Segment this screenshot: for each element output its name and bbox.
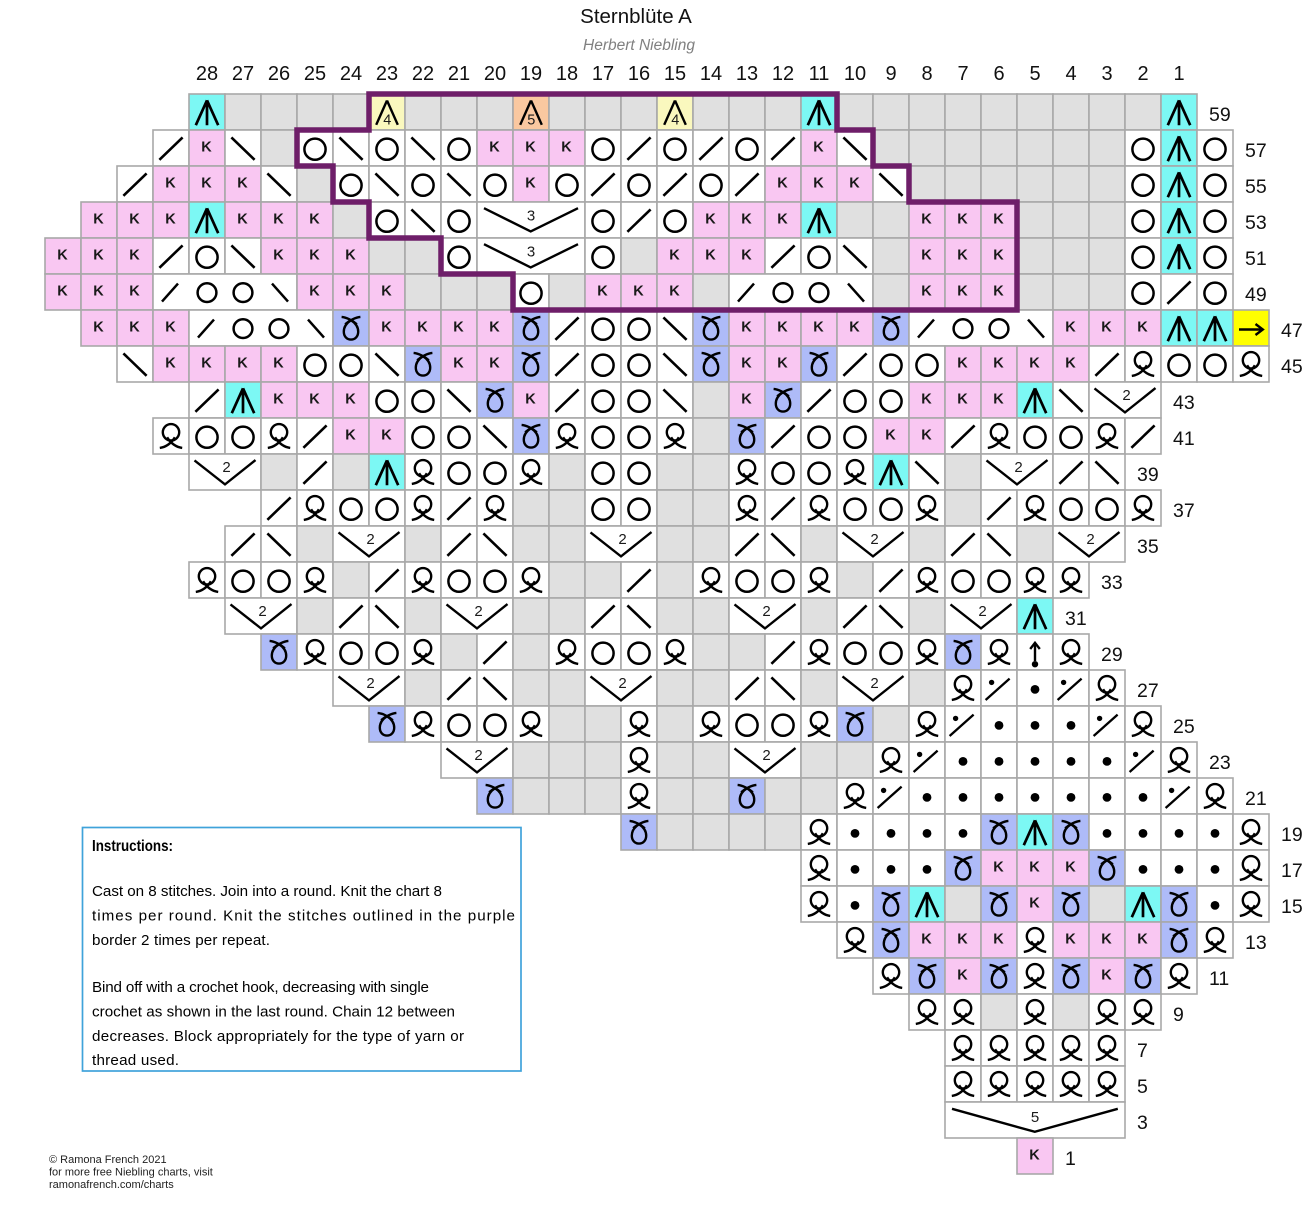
svg-text:7: 7 <box>957 63 968 85</box>
svg-text:53: 53 <box>1245 212 1267 234</box>
svg-text:2: 2 <box>1137 63 1148 85</box>
svg-text:9: 9 <box>1173 1004 1184 1026</box>
svg-text:11: 11 <box>809 63 830 85</box>
svg-text:22: 22 <box>412 63 434 85</box>
svg-text:for more free Niebling charts,: for more free Niebling charts, visit <box>49 1167 213 1179</box>
svg-text:11: 11 <box>1209 968 1229 990</box>
svg-text:33: 33 <box>1101 572 1123 594</box>
svg-text:39: 39 <box>1137 464 1159 486</box>
svg-text:border 2 times per repeat.: border 2 times per repeat. <box>92 932 270 949</box>
svg-text:29: 29 <box>1101 644 1123 666</box>
svg-text:49: 49 <box>1245 284 1267 306</box>
svg-text:13: 13 <box>1245 932 1267 954</box>
svg-text:59: 59 <box>1209 104 1231 126</box>
svg-text:21: 21 <box>1245 788 1267 810</box>
svg-text:25: 25 <box>304 63 326 85</box>
svg-text:26: 26 <box>268 63 290 85</box>
svg-text:7: 7 <box>1137 1040 1148 1062</box>
svg-text:16: 16 <box>628 63 650 85</box>
svg-text:14: 14 <box>700 63 722 85</box>
svg-text:5: 5 <box>1029 63 1040 85</box>
svg-text:Instructions:: Instructions: <box>92 838 173 855</box>
svg-text:27: 27 <box>232 63 254 85</box>
svg-text:15: 15 <box>664 63 686 85</box>
svg-text:1: 1 <box>1065 1148 1076 1170</box>
svg-text:ramonafrench.com/charts: ramonafrench.com/charts <box>49 1179 174 1191</box>
svg-text:23: 23 <box>376 63 398 85</box>
svg-text:3: 3 <box>1101 63 1112 85</box>
svg-text:13: 13 <box>736 63 758 85</box>
svg-text:Cast on 8 stitches. Join into: Cast on 8 stitches. Join into a round. K… <box>92 883 442 900</box>
svg-text:23: 23 <box>1209 752 1231 774</box>
svg-text:17: 17 <box>1281 860 1303 882</box>
svg-text:31: 31 <box>1065 608 1087 630</box>
svg-text:decreases. Block appropriately: decreases. Block appropriately for the t… <box>92 1028 464 1045</box>
svg-text:12: 12 <box>772 63 794 85</box>
svg-text:57: 57 <box>1245 140 1267 162</box>
svg-text:8: 8 <box>921 63 932 85</box>
svg-text:10: 10 <box>844 63 866 85</box>
svg-text:18: 18 <box>556 63 578 85</box>
svg-text:27: 27 <box>1137 680 1159 702</box>
svg-text:9: 9 <box>885 63 896 85</box>
svg-text:25: 25 <box>1173 716 1195 738</box>
svg-text:45: 45 <box>1281 356 1303 378</box>
svg-text:19: 19 <box>520 63 542 85</box>
svg-text:Bind off with a crochet hook,: Bind off with a crochet hook, decreasing… <box>92 979 429 996</box>
svg-text:28: 28 <box>196 63 218 85</box>
svg-text:37: 37 <box>1173 500 1195 522</box>
svg-text:1: 1 <box>1173 63 1184 85</box>
svg-text:20: 20 <box>484 63 506 85</box>
svg-text:6: 6 <box>993 63 1004 85</box>
svg-text:24: 24 <box>340 63 362 85</box>
svg-text:4: 4 <box>1065 63 1076 85</box>
svg-text:21: 21 <box>448 63 470 85</box>
svg-text:35: 35 <box>1137 536 1159 558</box>
svg-text:17: 17 <box>592 63 614 85</box>
svg-text:15: 15 <box>1281 896 1303 918</box>
svg-text:times per round. Knit the stit: times per round. Knit the stitches outli… <box>92 908 515 925</box>
svg-text:3: 3 <box>1137 1112 1148 1134</box>
svg-text:thread used.: thread used. <box>92 1052 179 1069</box>
svg-text:5: 5 <box>1137 1076 1148 1098</box>
svg-text:47: 47 <box>1281 320 1303 342</box>
svg-text:Herbert Niebling: Herbert Niebling <box>583 37 695 54</box>
svg-text:55: 55 <box>1245 176 1267 198</box>
svg-text:© Ramona French 2021: © Ramona French 2021 <box>49 1154 167 1166</box>
svg-text:crochet as shown in the last r: crochet as shown in the last round. Chai… <box>92 1004 455 1021</box>
svg-text:41: 41 <box>1173 428 1195 450</box>
svg-text:Sternblüte A: Sternblüte A <box>580 5 692 28</box>
svg-text:51: 51 <box>1245 248 1267 270</box>
svg-text:19: 19 <box>1281 824 1303 846</box>
svg-text:43: 43 <box>1173 392 1195 414</box>
